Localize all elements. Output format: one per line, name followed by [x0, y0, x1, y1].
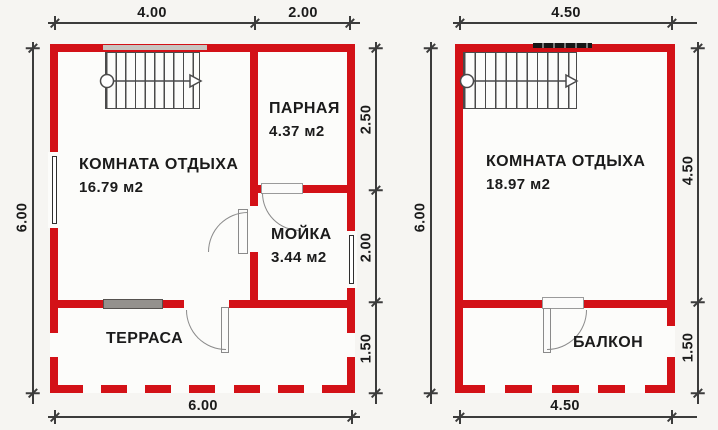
window-pane	[52, 156, 57, 224]
plan2-balcony-dashed-wall	[485, 385, 645, 393]
dim-tick	[368, 40, 384, 56]
wall-dash	[145, 385, 171, 393]
plan1-room-steam-label: ПАРНАЯ 4.37 м2	[269, 99, 340, 141]
plan1-window-west-icon	[48, 152, 60, 228]
wall-dash	[278, 385, 304, 393]
room-name: КОМНАТА ОТДЫХА	[79, 156, 238, 173]
room-name: МОЙКА	[271, 226, 332, 243]
plan2-room-rest-label: КОМНАТА ОТДЫХА 18.97 м2	[486, 152, 645, 194]
plan1-dim-left: 6.00	[15, 196, 32, 240]
room-name: КОМНАТА ОТДЫХА	[486, 153, 645, 170]
plan2-balcony-corner-left	[455, 385, 485, 393]
floor-plan-canvas: 4.00 2.00 6.00 2.50 2.00 1.50 6.00 4.50 …	[0, 0, 718, 430]
plan1-terrace-corner-right	[322, 385, 355, 393]
plan2-dim-bottom: 4.50	[543, 398, 587, 414]
dim-tick	[368, 294, 384, 310]
plan1-terrace-dashed-wall	[83, 385, 322, 393]
plan1-room-rest-label: КОМНАТА ОТДЫХА 16.79 м2	[79, 155, 238, 197]
wall-dash	[189, 385, 215, 393]
plan2-top-wall-hatch	[533, 43, 592, 48]
plan1-dim-line-bottom	[48, 416, 360, 418]
wall-dash	[101, 385, 127, 393]
plan1-stairs	[105, 52, 200, 109]
room-area: 16.79 м2	[79, 178, 238, 197]
plan2-room-balcony-label: БАЛКОН	[573, 333, 643, 352]
plan1-dim-right-2: 2.00	[359, 226, 376, 270]
plan1-dim-line-left	[32, 42, 34, 404]
dim-tick	[690, 294, 706, 310]
wall-dash	[552, 385, 579, 393]
plan1-dim-bottom: 6.00	[181, 398, 225, 414]
dim-tick	[664, 15, 680, 31]
dim-tick	[25, 385, 41, 401]
plan1-dim-right-1: 2.50	[359, 98, 376, 142]
dim-tick	[247, 15, 263, 31]
dim-tick	[423, 40, 439, 56]
dim-tick	[342, 15, 358, 31]
room-area: 4.37 м2	[269, 122, 340, 141]
plan1-door-rest-wash-opening	[249, 206, 259, 252]
plan1-stairs-direction-arrow-icon	[106, 53, 201, 110]
plan2-dim-line-left	[430, 42, 432, 404]
wall-dash	[234, 385, 260, 393]
dim-tick	[47, 409, 63, 425]
plan1-top-wall-opening	[103, 45, 207, 50]
room-area: 3.44 м2	[271, 248, 332, 267]
plan1-wall-steam-west	[250, 44, 258, 308]
plan2-wall-left	[455, 44, 463, 393]
dim-tick	[368, 385, 384, 401]
plan2-dim-left: 6.00	[413, 196, 430, 240]
plan2-dim-right-1: 4.50	[681, 149, 698, 193]
plan1-terrace-corner-left	[50, 385, 83, 393]
dim-tick	[664, 409, 680, 425]
wall-dash	[598, 385, 625, 393]
plan2-dim-top: 4.50	[544, 5, 588, 21]
room-area: 18.97 м2	[486, 175, 645, 194]
plan1-window-south-icon	[103, 299, 163, 309]
room-name: БАЛКОН	[573, 334, 643, 351]
plan1-window-wash-east-icon	[345, 231, 357, 288]
dim-tick	[344, 409, 360, 425]
plan1-dim-right-3: 1.50	[359, 327, 376, 371]
plan1-room-wash-label: МОЙКА 3.44 м2	[271, 225, 332, 267]
plan1-room-terrace-label: ТЕРРАСА	[106, 329, 183, 348]
plan2-wall-right	[667, 44, 675, 326]
plan2-balcony-corner-right	[645, 385, 675, 393]
plan2-stairs	[463, 52, 577, 109]
plan2-dim-line-bottom	[453, 416, 697, 418]
window-pane	[349, 235, 354, 284]
plan1-dim-line-top	[48, 22, 360, 24]
dim-tick	[452, 15, 468, 31]
dim-tick	[25, 40, 41, 56]
wall-dash	[505, 385, 532, 393]
dim-tick	[368, 182, 384, 198]
dim-tick	[47, 15, 63, 31]
room-name: ПАРНАЯ	[269, 100, 340, 117]
dim-tick	[423, 385, 439, 401]
plan1-dim-top-1: 4.00	[130, 5, 174, 21]
room-name: ТЕРРАСА	[106, 330, 183, 347]
dim-tick	[690, 385, 706, 401]
plan1-dim-top-2: 2.00	[281, 5, 325, 21]
plan2-dim-line-top	[453, 22, 697, 24]
dim-tick	[452, 409, 468, 425]
dim-tick	[690, 40, 706, 56]
plan2-dim-right-2: 1.50	[681, 326, 698, 370]
plan2-stairs-direction-arrow-icon	[464, 53, 578, 110]
